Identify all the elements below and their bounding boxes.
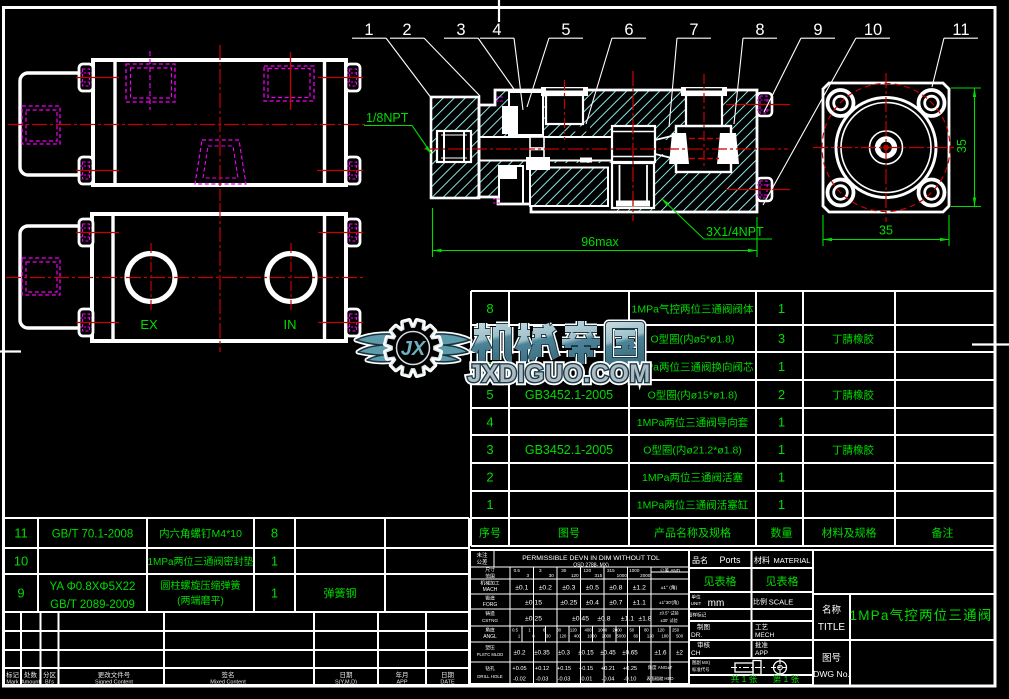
svg-text:材料及规格: 材料及规格 [822, 526, 877, 540]
svg-text:1: 1 [486, 497, 493, 512]
svg-text:±0.3: ±0.3 [562, 585, 575, 592]
svg-text:-0.04: -0.04 [602, 677, 615, 683]
svg-text:GB3452.1-2005: GB3452.1-2005 [525, 443, 613, 457]
svg-text:机械加工: 机械加工 [480, 580, 499, 587]
svg-text:MATERIAL: MATERIAL [774, 556, 811, 565]
svg-text:4: 4 [486, 415, 493, 430]
svg-text:9: 9 [17, 586, 24, 601]
svg-text:CSTNG: CSTNG [482, 618, 499, 623]
svg-text:mm: mm [708, 598, 725, 609]
svg-text:内六角螺钉M4*10: 内六角螺钉M4*10 [159, 527, 242, 540]
svg-text:塑压: 塑压 [485, 644, 495, 651]
svg-text:120: 120 [658, 628, 666, 633]
svg-text:±0.15: ±0.15 [525, 600, 542, 607]
svg-text:BI's: BI's [45, 680, 54, 686]
svg-text:公差 AND: 公差 AND [660, 567, 681, 573]
svg-text:QSD 2788- MX): QSD 2788- MX) [573, 563, 609, 569]
svg-text:GB3452.1-2005: GB3452.1-2005 [525, 388, 613, 402]
svg-text:±1°30'(角): ±1°30'(角) [659, 599, 679, 606]
svg-text:公差: 公差 [476, 558, 488, 566]
svg-text:3X1/4NPT: 3X1/4NPT [706, 225, 764, 239]
svg-text:2: 2 [778, 387, 785, 402]
svg-text:±0.3: ±0.3 [558, 650, 571, 657]
svg-text:8: 8 [755, 21, 764, 39]
svg-text:35: 35 [879, 224, 893, 238]
svg-text:GB/T 2089-2009: GB/T 2089-2009 [50, 599, 135, 611]
svg-text:尺寸: 尺寸 [485, 567, 495, 574]
svg-text:3: 3 [778, 331, 785, 346]
svg-text:1: 1 [778, 301, 785, 316]
svg-text:工艺: 工艺 [755, 623, 769, 631]
svg-text:DWG No.: DWG No. [813, 669, 850, 679]
svg-text:批准: 批准 [755, 640, 769, 649]
svg-text:315: 315 [594, 573, 602, 578]
svg-text:O型圈(内ø21.2*ø1.8): O型圈(内ø21.2*ø1.8) [643, 444, 742, 457]
svg-text:Mixed Content: Mixed Content [210, 680, 246, 686]
svg-text:1: 1 [778, 497, 785, 512]
svg-text:3: 3 [527, 573, 530, 578]
svg-text:30: 30 [549, 573, 555, 578]
svg-text:铸造: 铸造 [485, 610, 495, 617]
svg-text:1: 1 [778, 470, 785, 485]
svg-text:1: 1 [271, 554, 278, 569]
svg-text:O型圈(内ø5*ø1.8): O型圈(内ø5*ø1.8) [650, 333, 734, 346]
svg-text:Amount: Amount [21, 680, 40, 686]
svg-text:数量: 数量 [771, 527, 793, 540]
svg-text:96max: 96max [581, 235, 619, 249]
svg-text:弹簧钢: 弹簧钢 [324, 586, 357, 600]
svg-text:±30' 试验: ±30' 试验 [660, 617, 678, 624]
svg-text:日期: 日期 [340, 671, 354, 679]
svg-text:1000: 1000 [629, 568, 640, 573]
svg-text:(两端磨平): (两端磨平) [177, 594, 224, 607]
svg-text:图号: 图号 [822, 653, 841, 664]
svg-text:+0.25: +0.25 [623, 666, 637, 672]
svg-text:范围: 范围 [485, 573, 495, 580]
svg-text:Mark: Mark [6, 680, 18, 686]
svg-text:60: 60 [633, 634, 638, 639]
svg-text:3: 3 [486, 442, 493, 457]
svg-text:120: 120 [647, 634, 655, 639]
svg-text:8: 8 [271, 526, 278, 541]
svg-text:丁腈橡胶: 丁腈橡胶 [832, 333, 874, 346]
svg-text:材料: 材料 [754, 555, 770, 565]
svg-text:丁腈橡胶: 丁腈橡胶 [832, 444, 874, 457]
svg-text:备注: 备注 [932, 526, 954, 540]
svg-text:±0.1: ±0.1 [515, 585, 528, 592]
svg-text:±1.1: ±1.1 [621, 616, 634, 623]
svg-text:JX: JX [401, 338, 427, 360]
svg-text:1: 1 [778, 442, 785, 457]
svg-text:比例: 比例 [753, 597, 767, 606]
svg-text:PLSTC MLDD: PLSTC MLDD [477, 652, 504, 657]
svg-text:7: 7 [689, 21, 698, 39]
svg-text:±0.15: ±0.15 [578, 650, 594, 657]
svg-text:±1° (角): ±1° (角) [661, 584, 678, 591]
svg-text:50: 50 [629, 628, 634, 633]
svg-text:DR.: DR. [691, 632, 702, 639]
svg-text:5: 5 [561, 21, 570, 39]
svg-text:6: 6 [624, 21, 633, 39]
svg-text:11: 11 [14, 526, 28, 541]
svg-text:30: 30 [546, 634, 551, 639]
svg-text:400: 400 [574, 634, 582, 639]
svg-text:±0.25: ±0.25 [525, 616, 542, 623]
svg-text:Signed Content: Signed Content [95, 680, 133, 686]
svg-text:1MPa气控两位三通阀阀体: 1MPa气控两位三通阀阀体 [632, 303, 754, 316]
svg-text:±1.2: ±1.2 [633, 585, 646, 592]
svg-text:角度 ANG±T: 角度 ANG±T [648, 664, 673, 671]
svg-text:IN: IN [284, 317, 297, 332]
svg-text:+0.21: +0.21 [601, 666, 615, 672]
svg-text:±0.8: ±0.8 [597, 616, 610, 623]
svg-text:315: 315 [607, 568, 615, 573]
svg-text:圆柱螺旋压缩弹簧: 圆柱螺旋压缩弹簧 [161, 579, 241, 592]
svg-text:产品名称及规格: 产品名称及规格 [654, 526, 731, 540]
svg-text:锻造: 锻造 [485, 595, 495, 602]
svg-text:10: 10 [864, 21, 882, 39]
svg-text:图号: 图号 [558, 527, 580, 540]
svg-text:10: 10 [14, 554, 28, 569]
svg-text:1MPa两位三通阀活塞缸: 1MPa两位三通阀活塞缸 [637, 499, 749, 512]
svg-text:Ports: Ports [719, 555, 741, 565]
svg-text:1: 1 [364, 21, 373, 39]
svg-text:品名: 品名 [692, 555, 708, 565]
svg-text:5000: 5000 [617, 634, 627, 639]
svg-text:EX: EX [140, 317, 158, 332]
svg-text:丁腈橡胶: 丁腈橡胶 [832, 389, 874, 402]
svg-text:±0.4: ±0.4 [586, 600, 599, 607]
svg-text:3: 3 [539, 568, 542, 573]
svg-text:处数: 处数 [24, 670, 38, 679]
svg-text:+0.15: +0.15 [579, 666, 593, 672]
svg-text:1/8NPT: 1/8NPT [366, 111, 409, 125]
svg-text:1: 1 [271, 586, 278, 601]
svg-text:O型圈(内ø15*ø1.8): O型圈(内ø15*ø1.8) [648, 389, 738, 402]
svg-text:9: 9 [813, 21, 822, 39]
svg-text:YA Φ0.8XΦ5X22: YA Φ0.8XΦ5X22 [50, 581, 136, 593]
svg-text:CH: CH [691, 650, 701, 657]
svg-text:±0.2: ±0.2 [514, 650, 527, 657]
svg-text:TITLE: TITLE [818, 622, 846, 633]
svg-text:分区: 分区 [43, 670, 57, 679]
svg-text:1MPa两位三通阀密封垫: 1MPa两位三通阀密封垫 [147, 555, 253, 568]
svg-text:JXDIGUO.COM: JXDIGUO.COM [467, 360, 650, 388]
svg-text:年月: 年月 [396, 670, 409, 679]
svg-text:120: 120 [583, 568, 591, 573]
svg-text:±0.8: ±0.8 [609, 585, 622, 592]
svg-text:日期: 日期 [441, 671, 455, 679]
svg-text:3: 3 [456, 21, 465, 39]
svg-text:2000: 2000 [640, 573, 651, 578]
svg-text:GB/T 70.1-2008: GB/T 70.1-2008 [52, 529, 134, 541]
svg-text:APP: APP [396, 680, 407, 686]
svg-text:2000: 2000 [602, 634, 612, 639]
svg-text:+0.15: +0.15 [557, 666, 571, 672]
svg-text:120: 120 [559, 634, 567, 639]
svg-text:8: 8 [486, 301, 493, 316]
svg-text:图副 MX): 图副 MX) [692, 659, 711, 666]
svg-text:1MPa两位三通阀活塞: 1MPa两位三通阀活塞 [642, 471, 743, 484]
svg-text:-0.10: -0.10 [624, 677, 637, 683]
svg-text:0.5: 0.5 [514, 568, 521, 573]
svg-text:2000: 2000 [613, 628, 623, 633]
svg-text:5: 5 [486, 387, 493, 402]
svg-text:名称: 名称 [822, 604, 842, 616]
svg-text:PERMISSIBLE DEVN IN DIM WITHOU: PERMISSIBLE DEVN IN DIM WITHOUT TOL [522, 555, 660, 562]
svg-text:DRILL HOLE: DRILL HOLE [477, 674, 503, 679]
svg-text:4: 4 [492, 21, 501, 39]
svg-text:更改文件号: 更改文件号 [98, 670, 131, 679]
svg-text:1000: 1000 [587, 634, 597, 639]
svg-text:签名: 签名 [222, 670, 235, 679]
svg-text:+0.12: +0.12 [535, 666, 549, 672]
svg-text:±0.25: ±0.25 [560, 600, 577, 607]
svg-text:-0.03: -0.03 [558, 677, 571, 683]
svg-text:未注: 未注 [476, 551, 488, 559]
svg-text:钻孔: 钻孔 [485, 665, 495, 672]
svg-text:表面粗糙 HBO: 表面粗糙 HBO [647, 675, 675, 682]
svg-text:120: 120 [570, 628, 578, 633]
svg-text:APP: APP [755, 650, 768, 657]
svg-text:±0.5: ±0.5 [586, 585, 599, 592]
svg-text:±2: ±2 [676, 650, 683, 657]
svg-text:1MPa两位三通阀导向套: 1MPa两位三通阀导向套 [637, 416, 749, 429]
svg-text:-0.03: -0.03 [536, 677, 549, 683]
svg-text:180: 180 [662, 634, 670, 639]
svg-text:角度: 角度 [485, 627, 495, 634]
svg-text:400: 400 [585, 628, 593, 633]
svg-text:单位: 单位 [691, 594, 701, 601]
svg-text:±0.35: ±0.35 [534, 650, 550, 657]
svg-text:±0.5° 试验: ±0.5° 试验 [659, 610, 679, 617]
svg-text:+0.05: +0.05 [512, 666, 526, 672]
svg-text:35: 35 [955, 139, 969, 153]
svg-text:2: 2 [402, 21, 411, 39]
svg-text:30: 30 [556, 628, 561, 633]
svg-text:±0.2: ±0.2 [539, 585, 552, 592]
svg-text:1: 1 [778, 415, 785, 430]
svg-text:120: 120 [571, 573, 579, 578]
svg-text:1MPa气控两位三通阀: 1MPa气控两位三通阀 [850, 608, 993, 623]
svg-text:共 1 张: 共 1 张 [731, 674, 758, 684]
svg-text:±0.7: ±0.7 [609, 600, 622, 607]
svg-text:DATE: DATE [440, 680, 455, 686]
svg-text:序号: 序号 [479, 526, 501, 540]
svg-text:2: 2 [486, 470, 493, 485]
svg-text:图样标记: 图样标记 [688, 612, 707, 619]
svg-text:±0.65: ±0.65 [622, 650, 638, 657]
svg-text:±0.45: ±0.45 [600, 650, 616, 657]
svg-text:11: 11 [952, 21, 969, 39]
svg-text:1: 1 [778, 359, 785, 374]
svg-text:FORG: FORG [483, 602, 498, 608]
svg-text:UNIT: UNIT [691, 601, 702, 606]
svg-text:±1.8: ±1.8 [638, 616, 651, 623]
svg-text:ANGL: ANGL [483, 634, 497, 640]
svg-text:SCALE: SCALE [769, 598, 794, 607]
svg-text:±0.45: ±0.45 [572, 616, 589, 623]
svg-text:-0.02: -0.02 [513, 677, 526, 683]
svg-text:见表格: 见表格 [704, 574, 737, 588]
svg-text:见表格: 见表格 [766, 574, 799, 588]
svg-text:标记: 标记 [6, 670, 20, 679]
svg-text:S(Y,M,D): S(Y,M,D) [335, 680, 357, 686]
svg-text:0.5: 0.5 [512, 628, 518, 633]
svg-text:1000: 1000 [598, 628, 608, 633]
svg-text:1000: 1000 [617, 573, 628, 578]
svg-text:第 1 张: 第 1 张 [773, 674, 800, 684]
svg-text:250: 250 [672, 628, 680, 633]
svg-text:制图: 制图 [697, 622, 710, 631]
svg-text:30: 30 [561, 568, 567, 573]
svg-text:±1.6: ±1.6 [655, 650, 668, 657]
svg-text:MECH: MECH [755, 632, 774, 639]
svg-text:80: 80 [644, 628, 649, 633]
svg-text:500: 500 [676, 634, 684, 639]
svg-text:MACH: MACH [483, 587, 498, 593]
svg-text:标准代号: 标准代号 [692, 666, 710, 673]
svg-text:-0.01: -0.01 [580, 677, 593, 683]
svg-text:±1.1: ±1.1 [633, 600, 646, 607]
svg-text:审核: 审核 [697, 640, 711, 649]
